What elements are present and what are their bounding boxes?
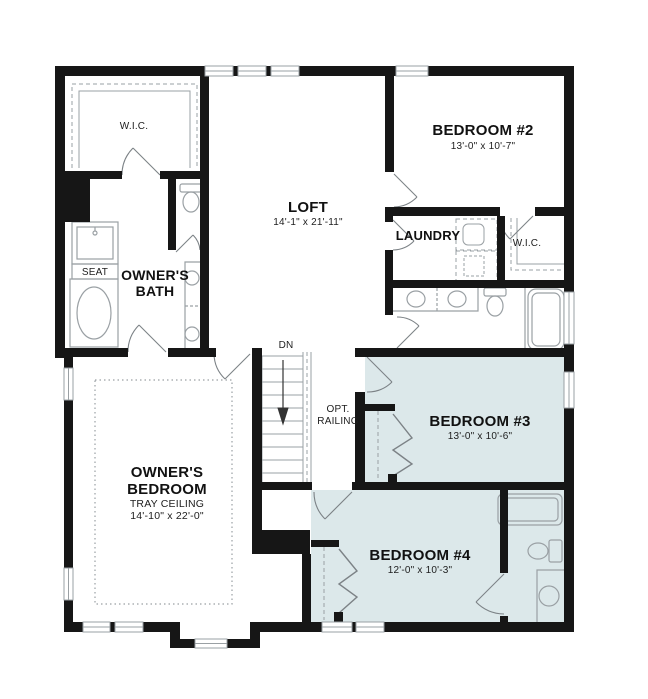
window (64, 368, 73, 400)
door-owners-bedroom (214, 354, 250, 379)
label-shower-seat: SEAT (82, 267, 108, 279)
owners-sink-2 (185, 327, 199, 341)
stairs (262, 352, 311, 486)
label-owners-bedroom-dims: 14'-10" x 22'-0" (130, 510, 204, 522)
label-owners-bedroom: OWNER'S BEDROOM (105, 464, 229, 498)
shower-head (93, 231, 97, 235)
label-bedroom2: BEDROOM #2 (432, 122, 533, 139)
window (83, 622, 110, 632)
label-loft-dims: 14'-1" x 21'-11" (273, 217, 343, 229)
window (238, 66, 266, 76)
label-owners-bath: OWNER'S BATH (113, 267, 197, 299)
label-bedroom3-dims: 13'-0" x 10'-6" (448, 431, 513, 443)
label-owners-wic: W.I.C. (120, 121, 148, 133)
washer-tub (463, 224, 484, 245)
dn-arrow (278, 360, 288, 424)
hall-bathtub-basin (532, 293, 560, 346)
label-bedroom3: BEDROOM #3 (429, 413, 530, 430)
hall-toilet-bowl (487, 296, 503, 316)
window (564, 292, 574, 344)
window (115, 622, 143, 632)
window (396, 66, 428, 76)
dn-arrow-head (278, 408, 288, 424)
label-bedroom2-wic: W.I.C. (513, 238, 541, 250)
floor-plan: W.I.C. BEDROOM #2 13'-0" x 10'-7" LOFT 1… (0, 0, 648, 699)
door-owners-wic (122, 148, 160, 175)
window (271, 66, 299, 76)
shower-inner (77, 227, 113, 259)
owners-toilet-bowl (183, 192, 199, 212)
hall-sink-2 (448, 291, 466, 307)
window (205, 66, 233, 76)
hall-bath-fixtures (393, 288, 564, 352)
bathtub-owners-basin (77, 287, 111, 339)
label-opt-railing: OPT. RAILING (310, 404, 366, 427)
window (564, 372, 574, 408)
label-loft: LOFT (288, 199, 328, 216)
label-owners-bedroom-note: TRAY CEILING (130, 498, 204, 510)
window (64, 568, 73, 600)
label-bedroom4-dims: 12'-0" x 10'-3" (388, 565, 453, 577)
door-bedroom2 (394, 174, 417, 207)
label-bedroom4: BEDROOM #4 (369, 547, 470, 564)
owners-toilet-tank (180, 184, 202, 192)
door-owners-bath (128, 325, 166, 352)
dryer-drum (464, 256, 484, 276)
label-laundry: LAUNDRY (396, 227, 460, 244)
hall-toilet-tank (484, 288, 506, 296)
window (195, 639, 227, 648)
floor-plan-canvas (0, 0, 648, 699)
door-hall-bath (397, 317, 419, 348)
washer-dryer (456, 219, 497, 282)
window (322, 622, 352, 632)
label-stairs-dn: DN (279, 340, 294, 352)
window (356, 622, 384, 632)
hall-bathtub (528, 289, 564, 350)
hall-sink-1 (407, 291, 425, 307)
label-bedroom2-dims: 13'-0" x 10'-7" (451, 141, 516, 153)
hall-vanity (393, 288, 478, 311)
door-owners-toilet-room (176, 235, 200, 252)
